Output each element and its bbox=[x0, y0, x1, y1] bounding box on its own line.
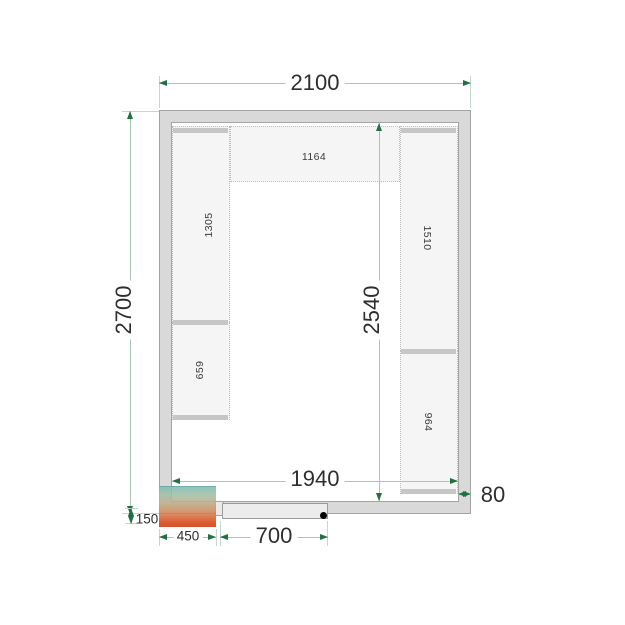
arrowhead-left-icon bbox=[220, 534, 228, 540]
shelf-edge-strip bbox=[173, 128, 228, 133]
shelf-edge-strip bbox=[401, 128, 456, 133]
arrowhead-right-icon bbox=[450, 478, 458, 484]
dim-wall-thickness-label: 80 bbox=[476, 483, 510, 507]
dim-door-width-label: 700 bbox=[251, 524, 298, 548]
dim-interior-height-label: 2540 bbox=[360, 281, 384, 340]
arrowhead-down-icon bbox=[376, 493, 382, 501]
shelf-left-upper bbox=[172, 126, 230, 322]
dim-unit-width-label: 450 bbox=[174, 530, 203, 545]
floor-plan-canvas: 1164 1305 659 1510 964 2100 2700 2540 19… bbox=[0, 0, 625, 625]
dim-interior-width-label: 1940 bbox=[286, 467, 345, 491]
arrowhead-right-icon bbox=[463, 491, 471, 497]
arrowhead-left-icon bbox=[159, 80, 167, 86]
shelf-right-lower-label: 964 bbox=[422, 413, 434, 432]
arrowhead-left-icon bbox=[159, 534, 167, 540]
shelf-edge-strip bbox=[173, 320, 228, 325]
shelf-left-upper-label: 1305 bbox=[203, 213, 215, 238]
shelf-left-lower-label: 659 bbox=[194, 361, 206, 380]
arrowhead-right-icon bbox=[320, 534, 328, 540]
shelf-edge-strip bbox=[401, 349, 456, 354]
shelf-edge-strip bbox=[401, 489, 456, 494]
arrowhead-right-icon bbox=[208, 534, 216, 540]
shelf-edge-strip bbox=[173, 415, 228, 420]
dim-unit-offset-label: 150 bbox=[133, 513, 162, 528]
door-pivot-dot bbox=[320, 512, 327, 519]
extension-line bbox=[216, 529, 217, 546]
dim-outer-width-label: 2100 bbox=[286, 71, 345, 95]
arrowhead-right-icon bbox=[463, 80, 471, 86]
arrowhead-up-icon bbox=[376, 123, 382, 131]
shelf-top-label: 1164 bbox=[302, 151, 326, 163]
cooling-unit-gradient bbox=[159, 486, 216, 527]
dim-outer-height-label: 2700 bbox=[112, 281, 136, 340]
arrowhead-up-icon bbox=[127, 111, 133, 119]
door-leaf bbox=[222, 503, 328, 519]
shelf-right-upper-label: 1510 bbox=[421, 226, 433, 251]
arrowhead-left-icon bbox=[172, 478, 180, 484]
